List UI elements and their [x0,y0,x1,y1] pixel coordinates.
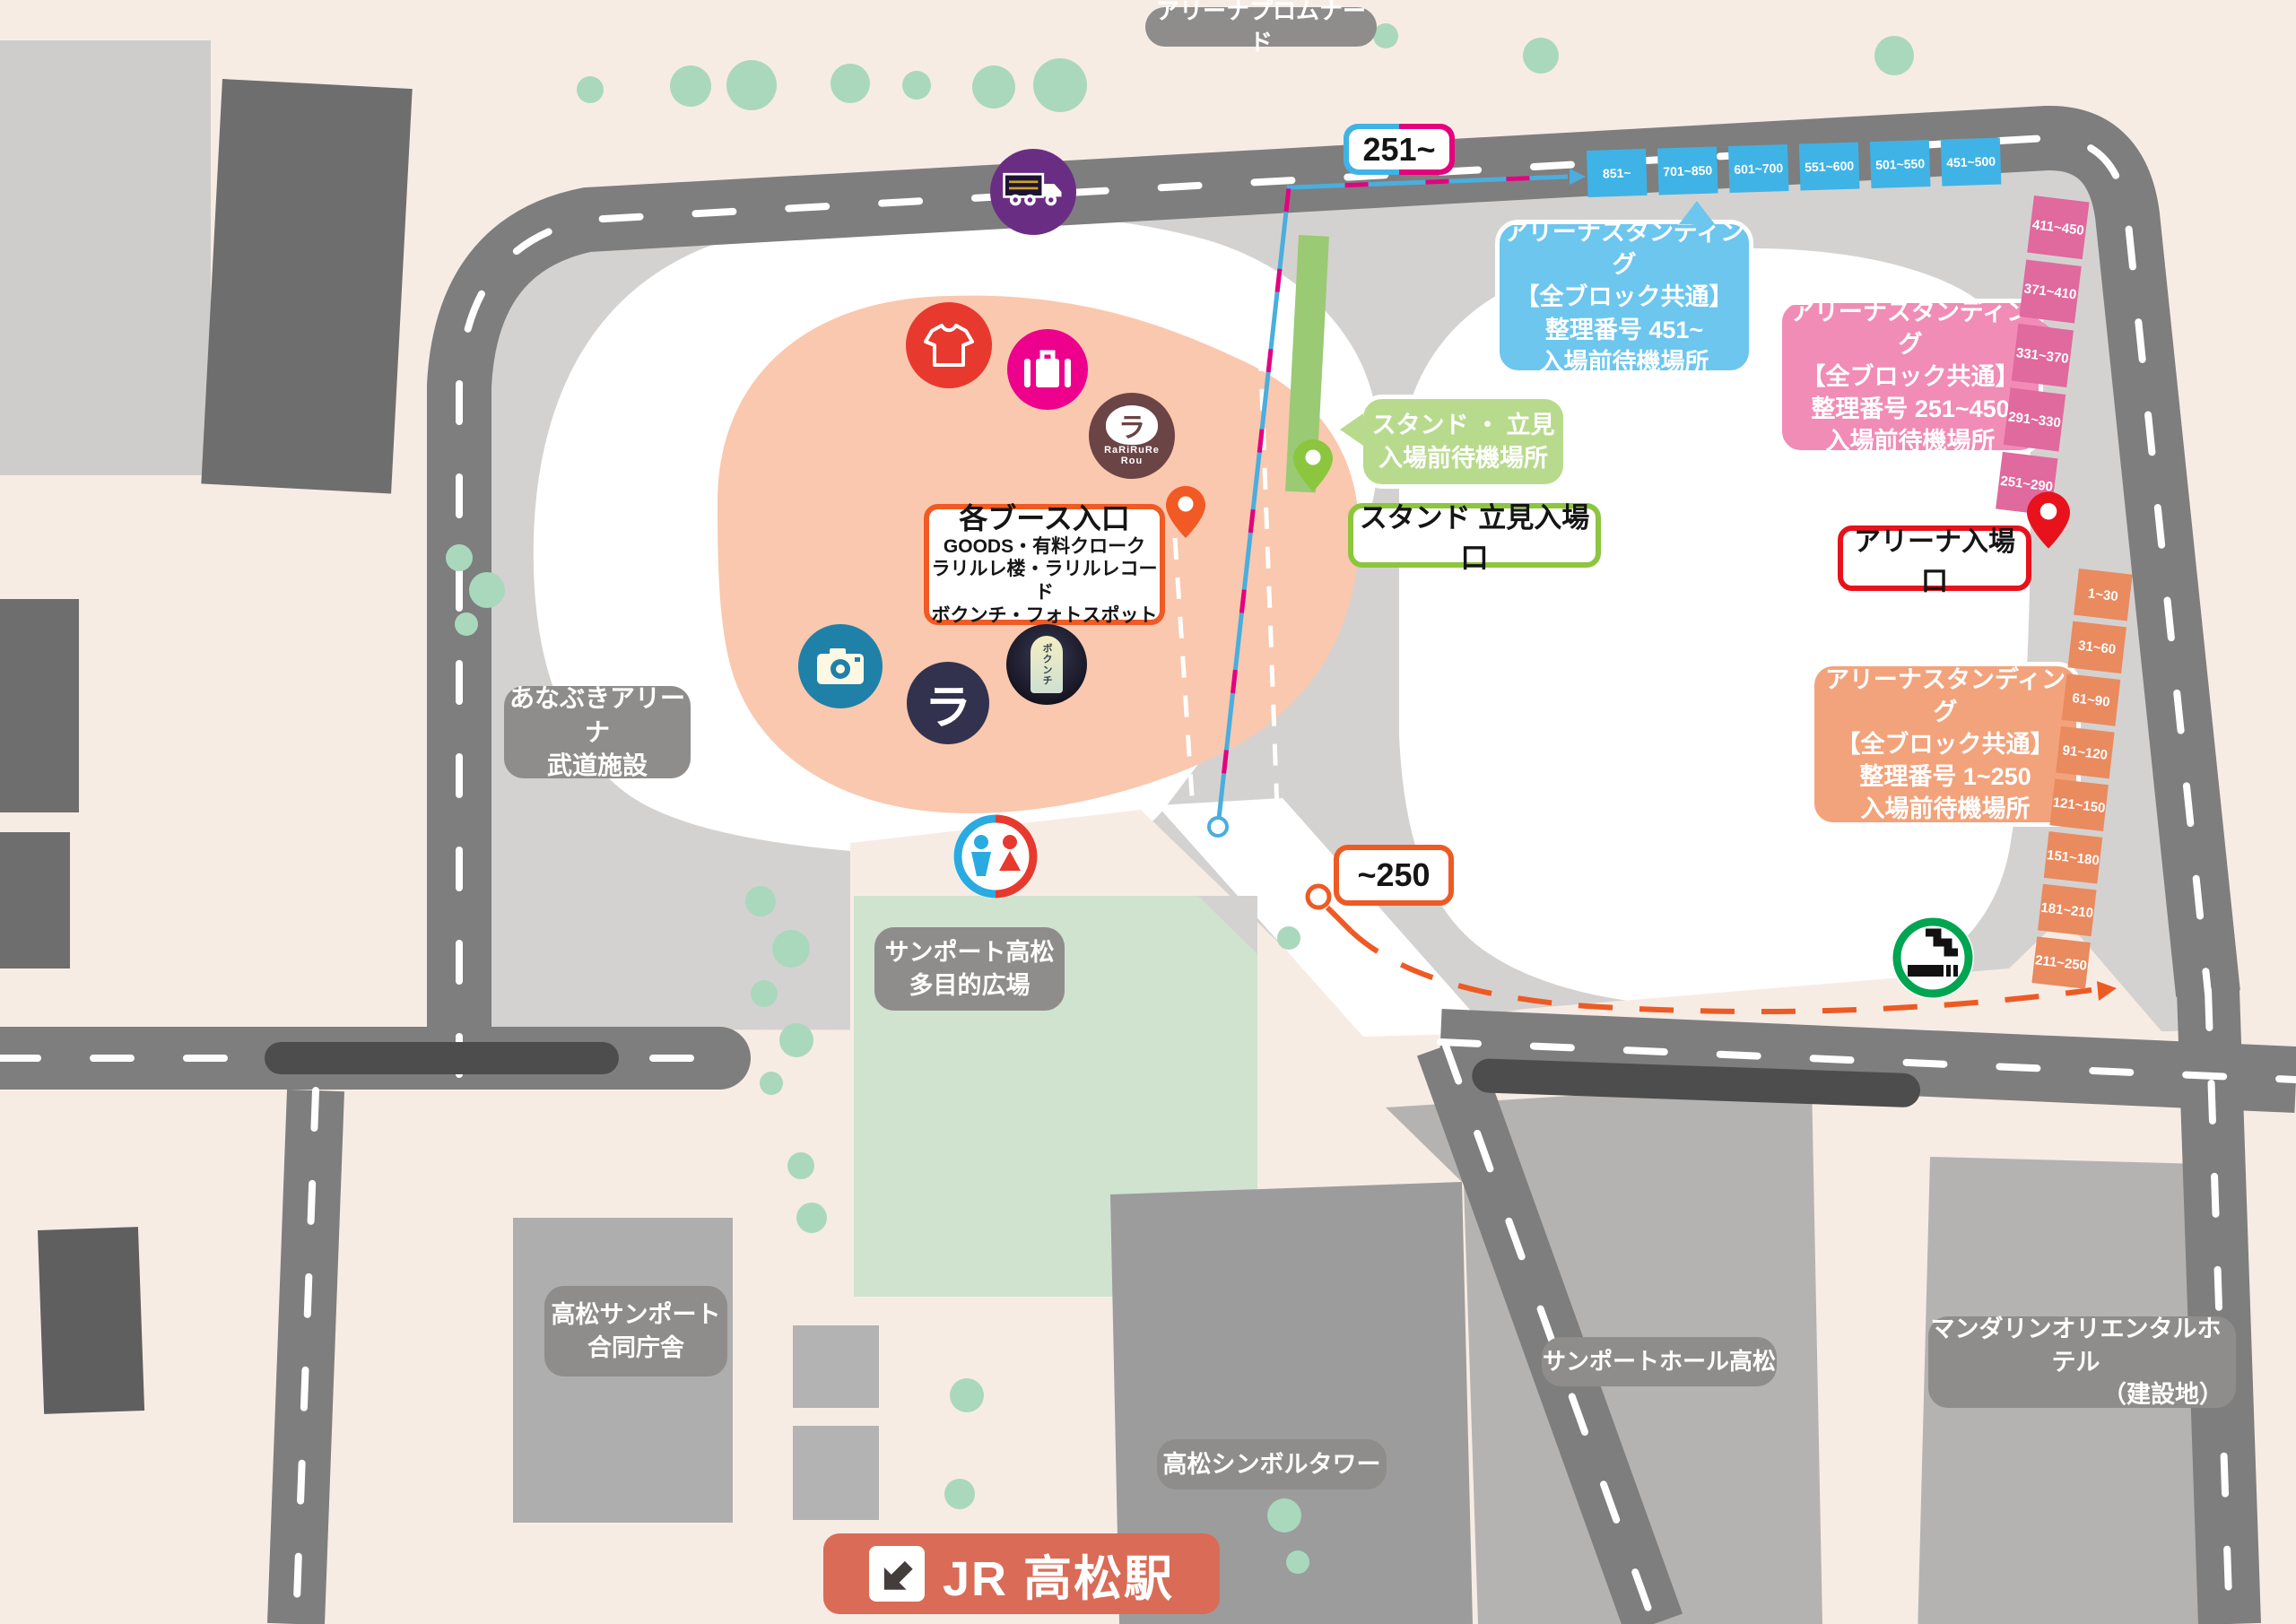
plaza-label-line1: サンポート高松 [885,936,1055,968]
booth-entrance-title: 各ブース入口 [959,502,1129,535]
smoking-area-icon [1892,916,1974,999]
waiting-block: 551~600 [1799,142,1860,190]
booth-entrance-line1: GOODS・有料クローク [944,535,1145,559]
sunport-hall-label: サンポートホール高松 [1542,1337,1777,1386]
godochosha-label: 高松サンポート 合同庁舎 [544,1286,727,1376]
booth-entrance-box: 各ブース入口 GOODS・有料クローク ラリルレ楼・ラリルレコード ボクンチ・フ… [924,504,1165,625]
orange-waiting-callout: アリーナスタンディング 【全ブロック共通】 整理番号 1~250 入場前待機場所 [1810,662,2081,827]
arena-entrance-text: アリーナ入場口 [1843,519,2026,598]
rarirurecord-logo: ラ [907,662,989,744]
bokunchi-logo: ボクンチ [1006,624,1087,705]
route-badge-251: 251~ [1344,124,1455,175]
goods-tshirt-icon [906,302,992,388]
truck-icon [990,149,1076,235]
stand-entrance-pin [1293,439,1333,496]
blue-callout-line3: 整理番号 451~ [1500,314,1749,346]
waiting-block: 371~410 [2019,259,2081,323]
orange-callout-line1: アリーナスタンディング [1814,664,2076,728]
promenade-label-text: アリーナプロムナード [1145,0,1377,58]
waiting-block: 61~90 [2062,673,2121,725]
pink-waiting-callout: アリーナスタンディング 【全ブロック共通】 整理番号 251~450 入場前待機… [1778,299,2043,455]
pink-callout-line1: アリーナスタンディング [1782,296,2039,360]
rarirure-blob: ラ [1106,405,1158,445]
symbol-tower-label: 高松シンボルタワー [1157,1439,1387,1489]
orange-callout-line4: 入場前待機場所 [1814,793,2076,825]
blue-callout-line2: 【全ブロック共通】 [1500,281,1749,313]
rarirure-tower-logo: ラ RaRiRuRe Rou [1089,393,1175,479]
stand-entrance-box: スタンド 立見入場口 [1348,503,1601,568]
mandarin-label-line2: （建設地） [2102,1378,2223,1411]
waiting-block: 851~ [1587,149,1648,197]
booth-entrance-pin [1166,486,1205,543]
station-label: JR 高松駅 [943,1539,1174,1610]
promenade-label: アリーナプロムナード [1145,7,1377,47]
rarirure-name: RaRiRuRe [1104,445,1160,456]
mandarin-label: マンダリンオリエンタルホテル （建設地） [1928,1316,2236,1408]
arena-building-label-line2: 武道施設 [547,749,648,783]
green-callout-line2: 入場前待機場所 [1363,442,1563,474]
record-glyph: ラ [925,670,971,737]
waiting-block: 91~120 [2056,726,2115,778]
blue-callout-line1: アリーナスタンディング [1500,216,1749,281]
waiting-block: 501~550 [1870,140,1931,188]
plaza-label-line2: 多目的広場 [909,969,1031,1002]
waiting-block: 121~150 [2049,778,2109,830]
route-badge-251-text: 251~ [1362,131,1435,169]
waiting-block: 291~330 [2004,387,2066,451]
pink-callout-line3: 整理番号 251~450 [1782,393,2039,425]
waiting-block: 601~700 [1728,144,1789,193]
orange-callout-line2: 【全ブロック共通】 [1814,728,2076,760]
pink-callout-line2: 【全ブロック共通】 [1782,360,2039,393]
green-callout-line1: スタンド ・ 立見 [1363,409,1563,441]
station-arrow-icon [869,1546,925,1602]
stand-entrance-text: スタンド 立見入場口 [1353,495,1596,576]
camera-icon [798,624,883,708]
arena-building-label: あなぶきアリーナ 武道施設 [504,686,691,778]
plaza-label: サンポート高松 多目的広場 [874,927,1065,1011]
bokunchi-text: ボクンチ [1039,643,1054,686]
waiting-block: 331~370 [2012,324,2074,387]
waiting-block: 411~450 [2027,195,2089,259]
waiting-block: 701~850 [1657,146,1718,195]
waiting-block: 151~180 [2044,831,2103,883]
restroom-icon [953,814,1038,899]
arena-building-label-line1: あなぶきアリーナ [504,682,691,750]
route-badge-250-text: ~250 [1357,856,1430,894]
route-badge-250: ~250 [1334,845,1454,906]
cloak-bag-icon [1007,329,1088,410]
rarirure-name2: Rou [1121,456,1143,466]
rarirure-glyph: ラ [1118,405,1145,445]
pink-callout-line4: 入場前待機場所 [1782,425,2039,457]
callout-pointer [1340,413,1363,446]
stand-waiting-callout: スタンド ・ 立見 入場前待機場所 [1359,395,1568,489]
arena-entrance-box: アリーナ入場口 [1838,525,2031,591]
orange-callout-line3: 整理番号 1~250 [1814,760,2076,793]
waiting-block: 211~250 [2031,936,2091,988]
waiting-block: 181~210 [2038,884,2097,936]
mandarin-label-line1: マンダリンオリエンタルホテル [1928,1313,2223,1378]
jr-station-badge: JR 高松駅 [823,1533,1220,1614]
blue-waiting-callout: アリーナスタンディング 【全ブロック共通】 整理番号 451~ 入場前待機場所 [1495,220,1753,375]
sunport-hall-label-text: サンポートホール高松 [1543,1346,1776,1377]
blue-callout-line4: 入場前待機場所 [1500,346,1749,378]
callout-pointer [1679,201,1715,224]
arena-entrance-pin [2027,491,2070,553]
venue-map: アリーナプロムナード あなぶきアリーナ 武道施設 サンポート高松 多目的広場 高… [0,0,2296,1624]
symbol-tower-label-text: 高松シンボルタワー [1163,1448,1381,1481]
waiting-block: 1~30 [2074,569,2133,621]
waiting-block: 31~60 [2067,621,2126,673]
godochosha-label-line2: 合同庁舎 [587,1332,684,1364]
bokunchi-door: ボクンチ [1031,636,1063,693]
booth-entrance-line2: ラリルレ楼・ラリルレコード [929,558,1160,604]
waiting-block: 451~500 [1941,138,2002,187]
godochosha-label-line1: 高松サンポート [552,1298,721,1331]
